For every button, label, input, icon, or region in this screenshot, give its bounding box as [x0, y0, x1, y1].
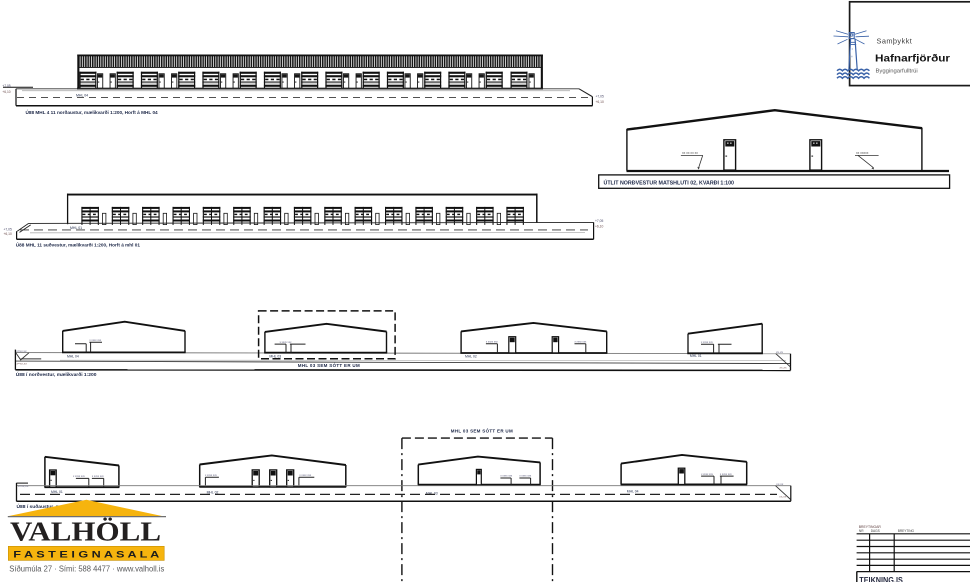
svg-text:x xxxx xxx: x xxxx xxx [299, 474, 312, 477]
svg-text:Byggingarfulltrúi: Byggingarfulltrúi [876, 69, 918, 75]
svg-text:+7,05: +7,05 [4, 228, 13, 232]
svg-text:+6,10: +6,10 [4, 232, 13, 236]
svg-text:x=xx,xx: x=xx,xx [16, 349, 27, 353]
svg-text:x xxxx xxx: x xxxx xxx [701, 341, 714, 344]
svg-text:MHL 03 SEM SÓTT ER UM: MHL 03 SEM SÓTT ER UM [298, 361, 360, 368]
svg-text:x xxxx xxx: x xxxx xxx [701, 473, 714, 476]
svg-text:x xxxx xxx: x xxxx xxx [720, 473, 733, 476]
svg-text:+6,10: +6,10 [2, 90, 11, 94]
svg-text:xx,xx: xx,xx [780, 365, 788, 369]
svg-text:Samþykkt: Samþykkt [877, 37, 913, 46]
svg-text:+7,05: +7,05 [596, 95, 605, 99]
svg-text:xx xxxxx: xx xxxxx [856, 151, 869, 155]
svg-text:x xxxx xxx: x xxxx xxx [575, 340, 588, 343]
svg-text:+7,05: +7,05 [2, 84, 11, 88]
svg-text:TEIKNING.IS: TEIKNING.IS [859, 575, 903, 582]
svg-text:Síðumúla 27 · Sími: 588 4477 ·: Síðumúla 27 · Sími: 588 4477 · www.valho… [9, 565, 164, 574]
svg-text:Ú88 í norðvestur, mælikvarði 1: Ú88 í norðvestur, mælikvarði 1:200 [16, 371, 97, 378]
svg-text:ÚTLIT NORÐVESTUR MATSHLUTI 02,: ÚTLIT NORÐVESTUR MATSHLUTI 02, KVARÐI 1:… [604, 179, 735, 186]
svg-text:DAGS: DAGS [871, 529, 880, 533]
svg-text:MHL 02: MHL 02 [465, 355, 477, 359]
svg-text:x xxxx xxx: x xxxx xxx [205, 474, 218, 477]
svg-text:x xxxx xxx: x xxxx xxx [73, 475, 86, 478]
svg-text:MHL 04: MHL 04 [76, 93, 88, 97]
svg-text:x xxxx xxx: x xxxx xxx [500, 475, 513, 478]
svg-text:x=xx,xx: x=xx,xx [17, 362, 28, 366]
svg-text:VALHÖLL: VALHÖLL [10, 516, 161, 547]
svg-text:NR: NR [859, 529, 864, 533]
svg-text:MHL 04: MHL 04 [627, 489, 639, 493]
svg-text:xx,xx: xx,xx [776, 482, 784, 486]
svg-text:MHL 01: MHL 01 [690, 354, 702, 358]
svg-text:BREYTING: BREYTING [898, 529, 915, 533]
svg-text:MHL 04: MHL 04 [67, 355, 79, 359]
svg-text:MHL 03 SEM SÓTT ER UM: MHL 03 SEM SÓTT ER UM [451, 426, 513, 433]
svg-text:xx,xx: xx,xx [776, 350, 784, 354]
svg-text:MHL 03: MHL 03 [269, 354, 281, 358]
svg-text:x xxxx xxx: x xxxx xxx [89, 339, 102, 342]
svg-text:+7,05: +7,05 [595, 219, 604, 223]
svg-text:BREYTINGAR: BREYTINGAR [859, 525, 882, 529]
svg-text:+6,10: +6,10 [595, 225, 604, 229]
svg-text:+6,10: +6,10 [596, 100, 605, 104]
svg-text:x xxxx xxx: x xxxx xxx [280, 341, 293, 344]
svg-text:x=xx,xx: x=xx,xx [18, 484, 29, 488]
svg-text:xx,xx: xx,xx [779, 494, 787, 498]
svg-text:F A S T E I G N A S A L A: F A S T E I G N A S A L A [13, 550, 160, 560]
svg-text:x xxxx xxx: x xxxx xxx [486, 340, 499, 343]
svg-text:xx xx xx xx: xx xx xx xx [682, 151, 698, 155]
svg-text:Ú88 MHL 11 suðvestur, mælikvar: Ú88 MHL 11 suðvestur, mælikvarði 1:200, … [16, 241, 141, 247]
svg-text:MHL 01: MHL 01 [51, 490, 63, 494]
svg-text:MHL 01: MHL 01 [70, 226, 82, 230]
svg-text:Hafnarfjörður: Hafnarfjörður [875, 52, 950, 64]
svg-text:x xxxx xxx: x xxxx xxx [519, 475, 532, 478]
svg-text:x xxxx xxx: x xxxx xxx [92, 475, 105, 478]
svg-text:Ú88 MHL 4 11 norðaustur, mælik: Ú88 MHL 4 11 norðaustur, mælikvarði 1:20… [26, 109, 159, 115]
